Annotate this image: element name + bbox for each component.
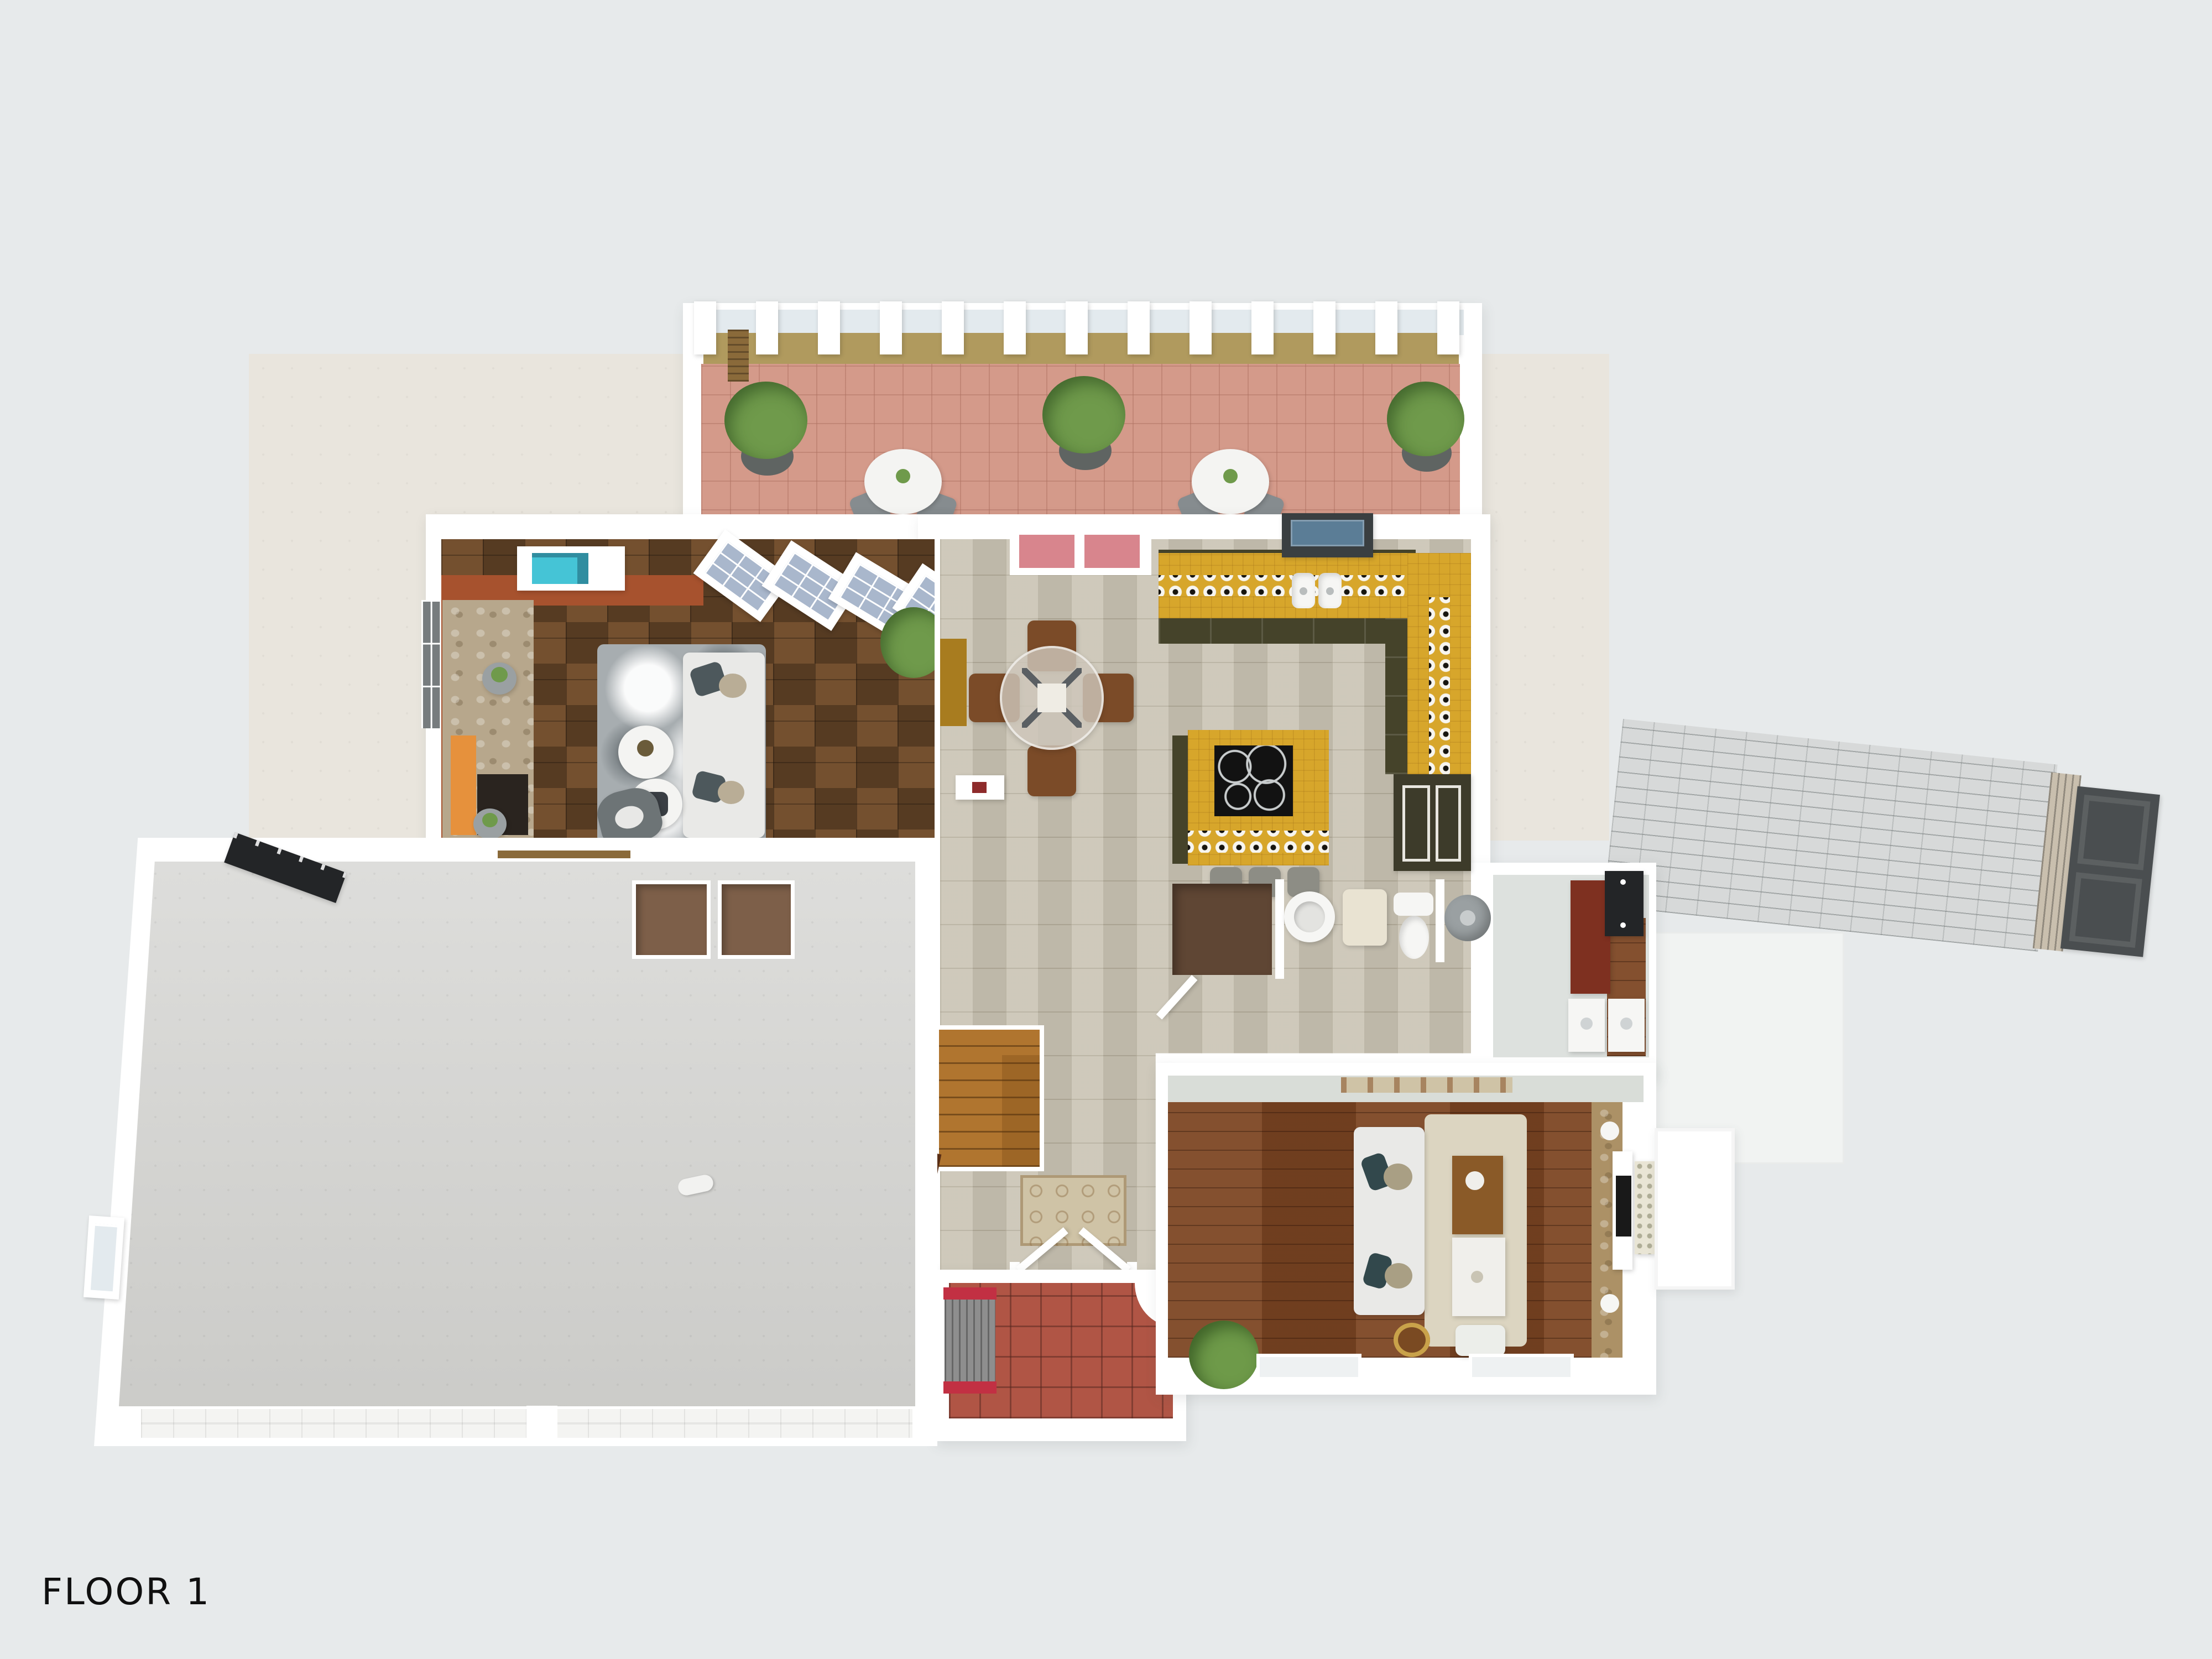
sunroom-column <box>1313 301 1335 354</box>
bistro-table-plant <box>896 469 910 483</box>
kitchen-cabinet-face-right <box>1385 618 1407 774</box>
sunroom-column <box>1128 301 1150 354</box>
garage-window-glass <box>91 1224 117 1291</box>
cooktop <box>1214 745 1293 816</box>
ottoman <box>1455 1325 1505 1356</box>
side-walkway-group <box>1603 719 2162 966</box>
hamper <box>1343 889 1387 946</box>
wall-art-teal <box>532 553 588 584</box>
washer-door <box>1580 1018 1593 1030</box>
bath-partition <box>1275 879 1284 979</box>
coffee-table-brown <box>1452 1156 1503 1234</box>
kitchen-right-tile-band <box>1429 597 1450 774</box>
gate-panel-top <box>2077 795 2150 870</box>
refrigerator-door <box>1402 785 1430 862</box>
bath-closet-brown <box>1172 884 1272 975</box>
sunroom-column <box>1251 301 1274 354</box>
sliding-door-pink <box>1082 532 1142 571</box>
dryer-door <box>1620 1018 1632 1030</box>
sink-basin <box>1294 901 1325 932</box>
bath-partition <box>1436 879 1444 962</box>
sunroom-column <box>756 301 778 354</box>
table-decor-bowl <box>1465 1171 1484 1190</box>
coffee-table-decor <box>637 740 654 757</box>
leaning-artwork <box>1635 1161 1655 1254</box>
exterior-pad-right <box>1482 354 1609 841</box>
garage-door-pillar <box>526 1406 557 1440</box>
family-window-sill <box>1469 1354 1574 1380</box>
sunroom-wood-door <box>728 330 749 382</box>
kitchen-cabinet-face <box>1159 618 1416 644</box>
family-sofa-pillow-round <box>1385 1263 1412 1288</box>
garage-floor <box>119 862 915 1406</box>
gate-panel-bottom <box>2069 872 2142 948</box>
sunroom-column <box>880 301 902 354</box>
porch-bench <box>945 1291 995 1390</box>
island-tile-band <box>1188 831 1329 853</box>
sunroom-column <box>1004 301 1026 354</box>
console-decor-red <box>972 782 987 793</box>
sunroom-column <box>1437 301 1459 354</box>
potted-plant <box>1042 376 1125 453</box>
potted-plant <box>1387 382 1464 456</box>
floor-plant <box>1189 1321 1259 1389</box>
family-window-sill <box>1256 1354 1361 1380</box>
wall-planter <box>1600 1121 1619 1140</box>
dining-centerpiece <box>1037 684 1066 712</box>
tv-screen <box>1616 1176 1631 1237</box>
kitchen-counter-tile-band <box>1159 575 1416 596</box>
family-sofa <box>1354 1127 1425 1315</box>
storage-niche <box>632 880 711 959</box>
side-table-plant <box>482 813 498 827</box>
sliding-door-pink <box>1016 532 1077 571</box>
sofa-pillow-tan <box>719 674 747 698</box>
porch-bench-cushion <box>943 1381 997 1394</box>
wall-planter <box>1600 1294 1619 1313</box>
bench-knob <box>1620 879 1626 885</box>
toilet-tank <box>1394 893 1433 916</box>
walkway-gate <box>2060 786 2160 957</box>
side-walkway <box>1603 719 2057 952</box>
sunroom-column <box>694 301 716 354</box>
sunroom-column <box>942 301 964 354</box>
range-window-glass <box>1291 520 1364 546</box>
sink-drain <box>1326 587 1334 595</box>
fireplace-mantel <box>451 735 476 835</box>
potted-plant <box>724 382 807 459</box>
bench-knob <box>1620 922 1626 928</box>
floor-plan-stage: FLOOR 1 <box>0 0 2212 1659</box>
table-decor-dot <box>1471 1271 1483 1283</box>
bistro-table-plant <box>1223 469 1238 483</box>
side-table-gold <box>1394 1323 1430 1357</box>
floor-label: FLOOR 1 <box>41 1571 211 1613</box>
sunroom-column <box>1375 301 1397 354</box>
garage-door <box>141 1409 528 1438</box>
bay-nook <box>1655 1128 1735 1290</box>
entry-runner-rug <box>1020 1175 1126 1246</box>
storage-niche <box>718 880 795 959</box>
porch-bench-cushion <box>943 1287 997 1300</box>
hall-runner-rug <box>1341 1077 1512 1093</box>
staircase-upper-flight <box>1002 1055 1040 1167</box>
sunroom-column <box>1190 301 1212 354</box>
family-sofa-pillow-round <box>1384 1164 1412 1190</box>
dining-chair <box>1027 745 1076 796</box>
garage-door <box>556 1409 912 1438</box>
sofa-pillow-tan <box>718 781 744 804</box>
toilet-bowl <box>1399 916 1429 959</box>
sunroom-column <box>1066 301 1088 354</box>
garage-door-threshold <box>498 851 630 858</box>
side-table-plant <box>491 667 508 682</box>
refrigerator-door <box>1436 785 1461 862</box>
pantry-door-mustard <box>940 639 967 726</box>
water-heater-cap <box>1460 910 1475 926</box>
sink-drain <box>1300 587 1307 595</box>
sunroom-column <box>818 301 840 354</box>
